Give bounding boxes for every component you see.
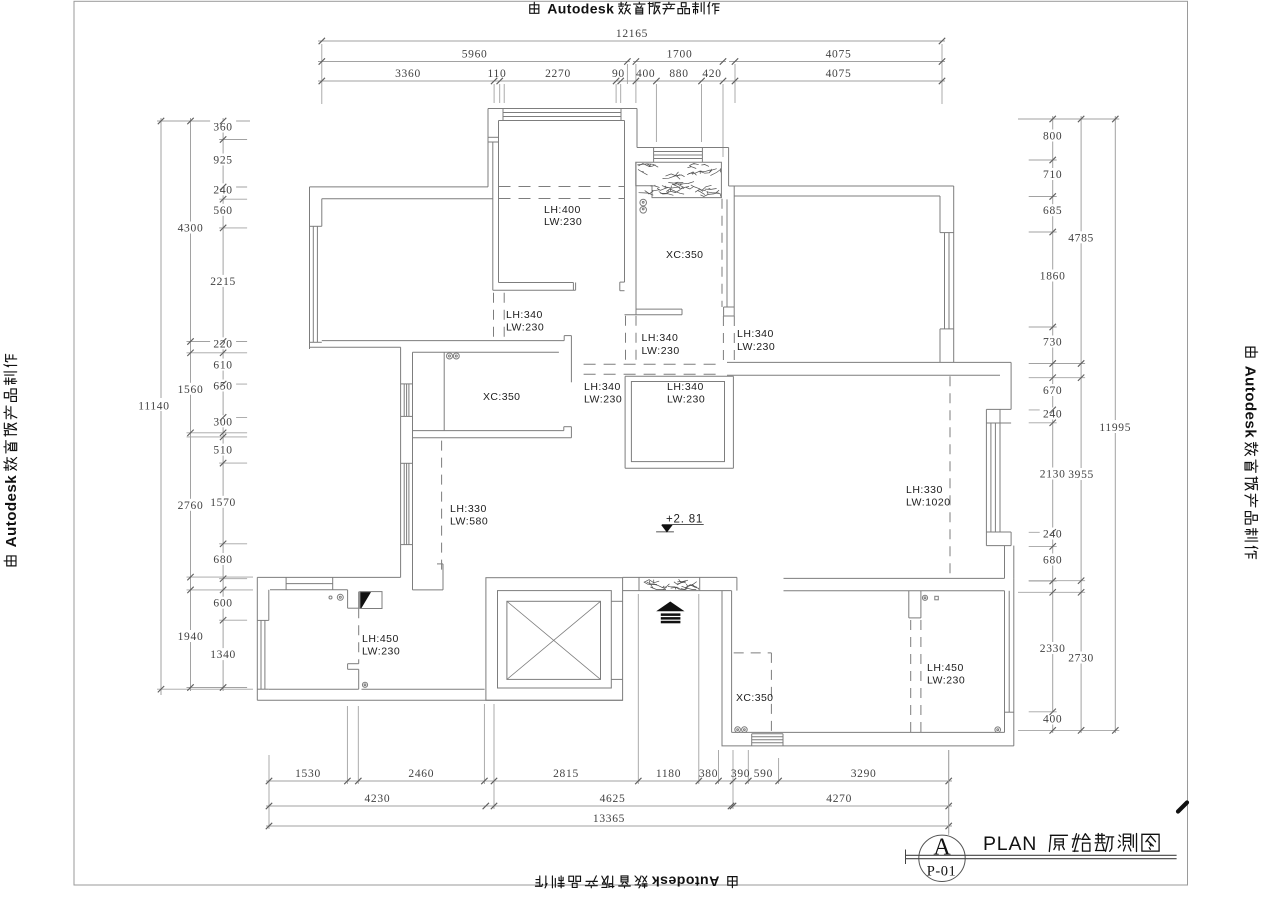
svg-text:1700: 1700	[667, 49, 693, 61]
svg-text:LH:340: LH:340	[667, 381, 704, 393]
svg-text:3955: 3955	[1068, 469, 1094, 481]
svg-text:LH:450: LH:450	[927, 662, 964, 674]
svg-text:XC:350: XC:350	[666, 249, 703, 261]
svg-text:LW:230: LW:230	[544, 216, 582, 228]
svg-text:2815: 2815	[553, 768, 579, 780]
svg-text:LH:400: LH:400	[544, 204, 581, 216]
svg-text:2460: 2460	[408, 768, 434, 780]
svg-text:1860: 1860	[1040, 271, 1066, 283]
svg-text:LH:340: LH:340	[506, 309, 543, 321]
svg-text:LH:330: LH:330	[450, 503, 487, 515]
svg-text:730: 730	[1043, 337, 1062, 349]
svg-text:1340: 1340	[210, 649, 236, 661]
svg-text:4075: 4075	[826, 68, 852, 80]
svg-text:4300: 4300	[178, 223, 204, 235]
svg-text:LW:230: LW:230	[737, 341, 775, 353]
svg-text:1180: 1180	[656, 768, 681, 780]
svg-text:600: 600	[213, 598, 232, 610]
svg-text:XC:350: XC:350	[483, 391, 520, 403]
svg-text:650: 650	[213, 381, 232, 393]
svg-text:240: 240	[1043, 529, 1062, 541]
svg-text:2130: 2130	[1040, 469, 1066, 481]
svg-text:Autodesk: Autodesk	[651, 873, 719, 889]
svg-text:680: 680	[213, 554, 232, 566]
svg-text:11995: 11995	[1099, 422, 1131, 434]
svg-text:2215: 2215	[210, 276, 236, 288]
svg-text:LW:230: LW:230	[584, 394, 622, 406]
svg-text:Autodesk: Autodesk	[547, 0, 614, 16]
svg-text:LH:340: LH:340	[737, 328, 774, 340]
svg-text:4075: 4075	[826, 49, 852, 61]
svg-text:LH:330: LH:330	[906, 484, 943, 496]
svg-text:11140: 11140	[138, 401, 169, 413]
svg-text:1570: 1570	[210, 497, 236, 509]
svg-text:420: 420	[702, 68, 721, 80]
svg-text:LW:230: LW:230	[667, 394, 705, 406]
svg-text:360: 360	[213, 122, 232, 134]
svg-text:LW:1020: LW:1020	[906, 497, 951, 509]
svg-text:670: 670	[1043, 385, 1062, 397]
svg-text:400: 400	[1043, 714, 1062, 726]
svg-text:685: 685	[1043, 205, 1062, 217]
svg-text:LH:340: LH:340	[584, 381, 621, 393]
svg-text:4230: 4230	[364, 793, 390, 805]
svg-text:5960: 5960	[462, 49, 488, 61]
svg-text:1940: 1940	[178, 631, 204, 643]
svg-text:XC:350: XC:350	[736, 692, 773, 704]
svg-text:800: 800	[1043, 131, 1062, 143]
svg-text:2330: 2330	[1040, 643, 1066, 655]
svg-text:Autodesk: Autodesk	[3, 475, 20, 548]
svg-text:4785: 4785	[1068, 232, 1094, 244]
svg-text:Autodesk: Autodesk	[1242, 366, 1259, 439]
svg-text:4625: 4625	[600, 793, 626, 805]
svg-text:3360: 3360	[395, 68, 421, 80]
svg-text:2270: 2270	[545, 68, 571, 80]
svg-text:LW:230: LW:230	[927, 675, 965, 687]
svg-text:925: 925	[213, 155, 232, 167]
svg-text:4270: 4270	[826, 793, 852, 805]
svg-text:710: 710	[1043, 169, 1062, 181]
svg-text:510: 510	[213, 445, 232, 457]
svg-text:1560: 1560	[178, 384, 204, 396]
svg-text:560: 560	[213, 205, 232, 217]
svg-text:880: 880	[669, 68, 688, 80]
svg-text:LW:230: LW:230	[642, 345, 680, 357]
svg-text:240: 240	[213, 184, 232, 196]
svg-text:2730: 2730	[1068, 653, 1094, 665]
svg-text:LW:230: LW:230	[506, 322, 544, 334]
svg-text:LW:230: LW:230	[362, 646, 400, 658]
svg-text:1530: 1530	[295, 768, 321, 780]
svg-text:2760: 2760	[178, 500, 204, 512]
svg-text:680: 680	[1043, 555, 1062, 567]
svg-text:610: 610	[213, 360, 232, 372]
svg-text:PLAN: PLAN	[983, 833, 1037, 855]
svg-text:LW:580: LW:580	[450, 516, 488, 528]
svg-text:LH:340: LH:340	[642, 332, 679, 344]
svg-text:A: A	[933, 835, 951, 861]
svg-text:3290: 3290	[851, 768, 877, 780]
svg-text:390: 390	[731, 768, 750, 780]
svg-text:13365: 13365	[593, 813, 625, 825]
svg-text:220: 220	[213, 338, 232, 350]
svg-text:+2. 81: +2. 81	[666, 514, 703, 526]
svg-text:590: 590	[754, 768, 773, 780]
svg-text:LH:450: LH:450	[362, 633, 399, 645]
svg-text:P-01: P-01	[927, 864, 956, 880]
svg-text:12165: 12165	[616, 28, 648, 40]
